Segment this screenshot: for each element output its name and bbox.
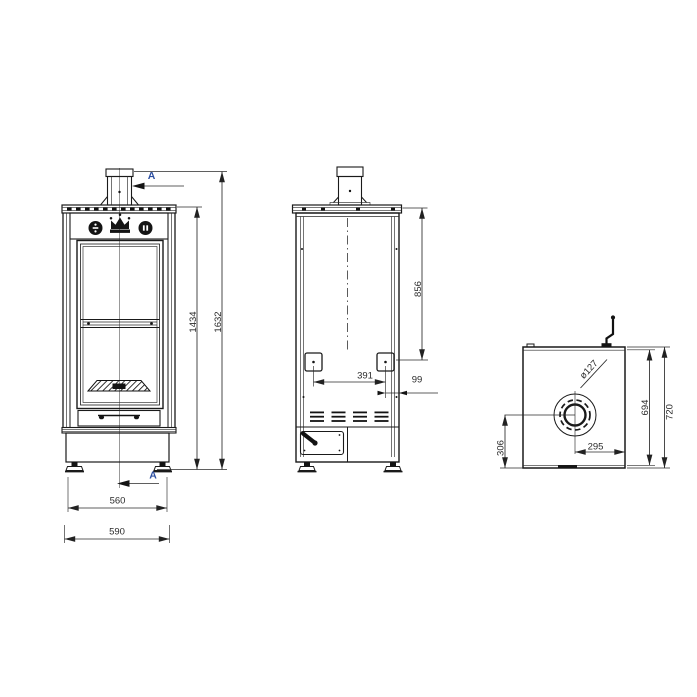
dim-label-590: 590 <box>109 527 125 538</box>
flue-outlet <box>505 391 597 454</box>
dim-port-spacing: 391 <box>314 366 386 398</box>
rear-body <box>296 213 399 462</box>
dim-label-694: 694 <box>640 400 651 416</box>
dim-label-856: 856 <box>413 281 424 297</box>
front-top-plate <box>62 205 176 213</box>
window-divider <box>81 320 160 328</box>
top-view: ø127 694 720 306 295 <box>496 315 676 468</box>
dim-port-edge-offset: 99 <box>378 375 439 396</box>
front-window <box>77 241 163 409</box>
dim-label-720: 720 <box>665 404 676 420</box>
section-marker-bottom: A <box>117 470 159 487</box>
section-label-bottom: A <box>149 470 157 482</box>
rear-view: 856 391 99 <box>293 167 439 472</box>
dim-total-depth: 720 <box>627 347 676 468</box>
ash-drawer[interactable] <box>78 411 160 427</box>
vent-slots <box>310 412 389 422</box>
control-panel <box>70 213 168 239</box>
dim-label-295: 295 <box>588 442 604 453</box>
front-view: A <box>62 168 227 543</box>
left-knob-icon <box>94 224 96 226</box>
top-edge-tab <box>527 344 534 347</box>
dim-total-height: 1632 <box>134 172 227 470</box>
top-lever[interactable] <box>602 315 616 347</box>
section-arrow-icon <box>117 480 130 487</box>
rear-top-plate <box>293 205 402 213</box>
door-handle-mark <box>558 465 577 468</box>
dim-label-391: 391 <box>357 371 373 382</box>
rear-chimney <box>330 167 370 205</box>
rear-foot-right <box>384 462 403 472</box>
front-body-sides <box>63 213 175 428</box>
rear-base <box>296 427 399 462</box>
right-knob-icon <box>143 225 145 230</box>
section-arrow-icon <box>132 183 145 190</box>
section-marker-top: A <box>132 170 184 189</box>
dim-label-306: 306 <box>496 440 507 456</box>
front-foot-left <box>65 462 84 472</box>
dim-feet-spacing: 560 <box>68 477 167 512</box>
dim-total-width: 590 <box>65 525 170 543</box>
dim-flue-diameter: ø127 <box>578 358 607 388</box>
front-base <box>62 428 176 463</box>
dim-flue-from-side: 295 <box>575 442 625 453</box>
dim-label-1434: 1434 <box>188 311 199 332</box>
dim-label-99: 99 <box>412 375 423 386</box>
rear-foot-left <box>298 462 317 472</box>
burner-grate <box>88 381 150 392</box>
stove-dimension-drawing: A <box>0 0 697 697</box>
damper-lever[interactable] <box>303 434 315 443</box>
top-view-outline <box>523 347 625 468</box>
dim-body-height: 1434 <box>177 207 202 470</box>
crown-logo-icon <box>110 214 131 233</box>
drawing-canvas: A <box>0 0 697 697</box>
dim-label-1632: 1632 <box>213 311 224 332</box>
dim-label-560: 560 <box>110 496 126 507</box>
dim-inner-depth: 694 <box>627 350 655 466</box>
dim-top-to-ports: 856 <box>396 208 428 360</box>
left-control-knob[interactable] <box>89 221 103 235</box>
right-control-knob[interactable] <box>139 221 153 235</box>
dim-flue-from-front: 306 <box>496 415 524 468</box>
